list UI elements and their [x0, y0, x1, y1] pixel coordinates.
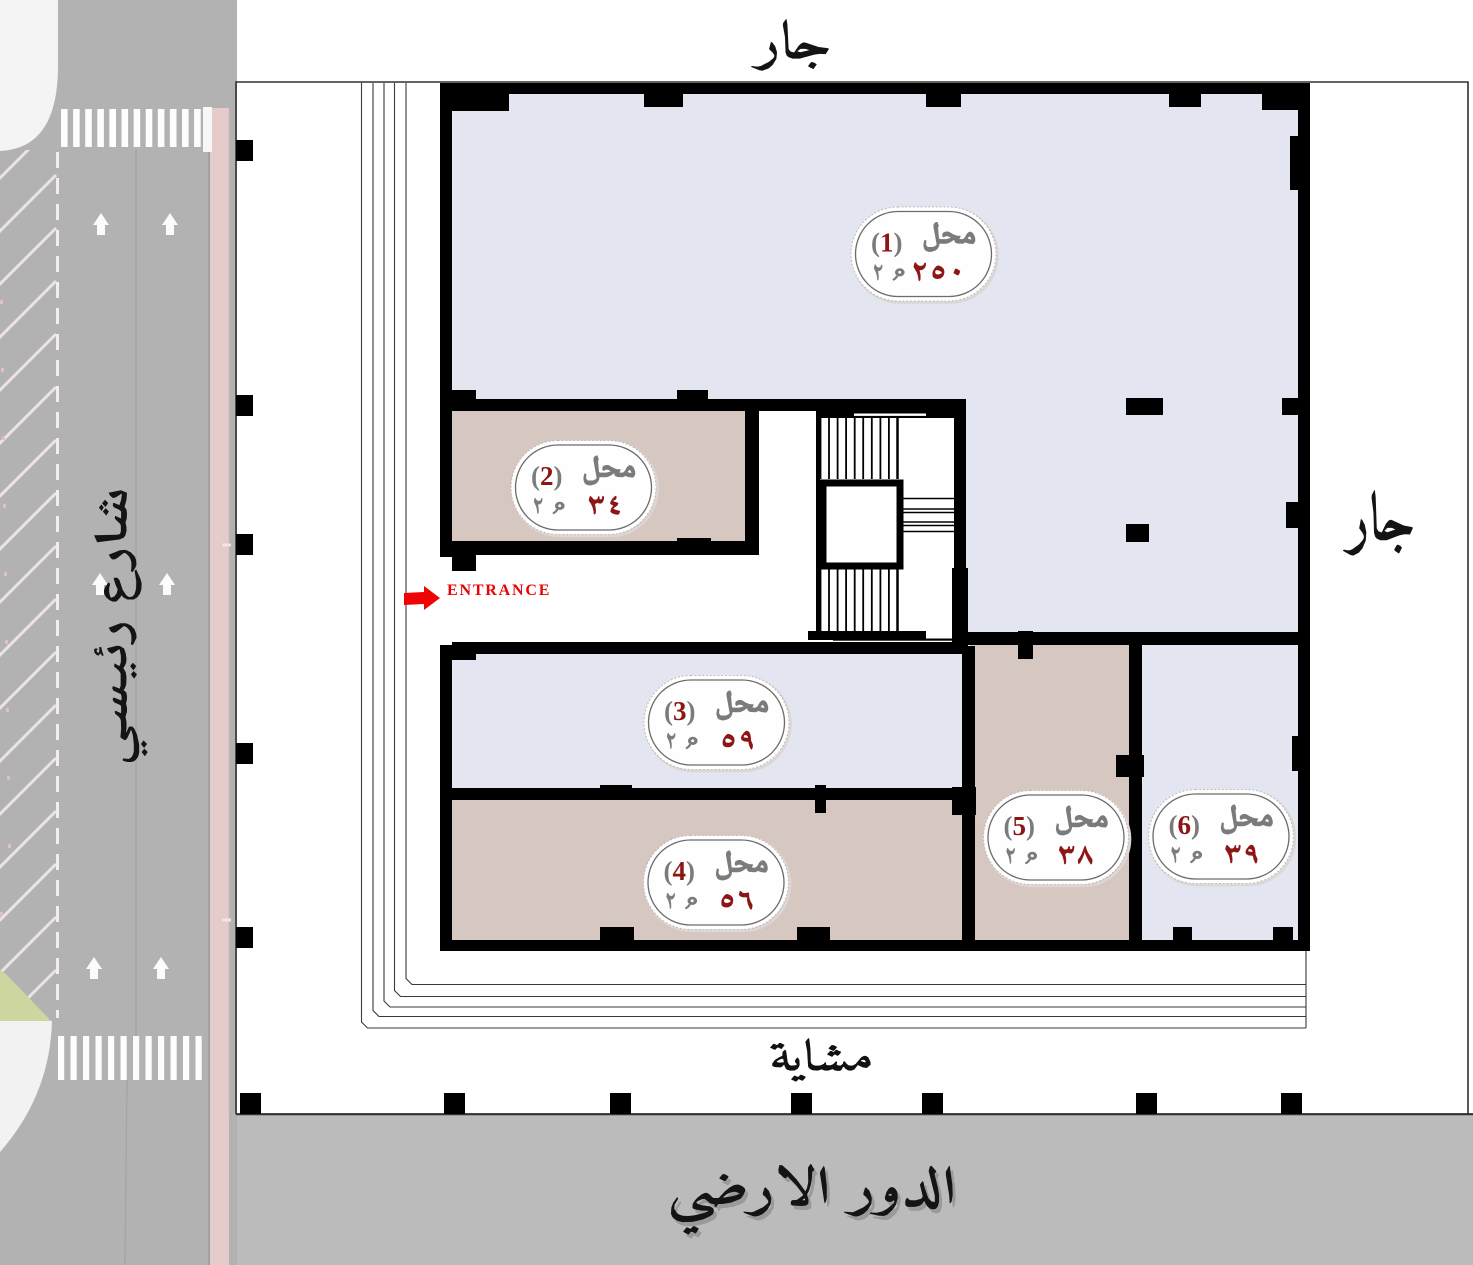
- svg-text:(6): (6): [1169, 810, 1201, 840]
- svg-text:(1): (1): [871, 228, 903, 258]
- svg-text:ENTRANCE: ENTRANCE: [447, 582, 551, 599]
- svg-text:(2): (2): [531, 461, 563, 491]
- svg-text:(5): (5): [1004, 811, 1036, 841]
- svg-text:(3): (3): [664, 696, 696, 726]
- svg-text:(4): (4): [664, 856, 696, 886]
